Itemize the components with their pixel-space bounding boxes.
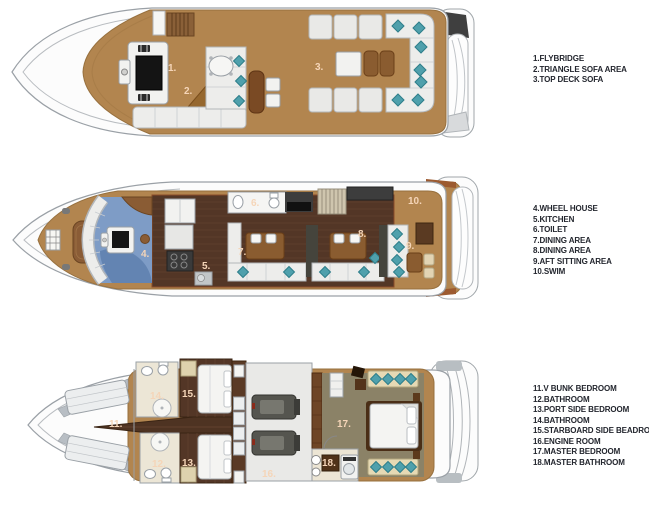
legend-main-deck: 4.WHEEL HOUSE 5.KITCHEN 6.TOILET 7.DININ…	[533, 204, 612, 278]
plan-label-1: 1.	[168, 63, 177, 74]
engine	[252, 395, 300, 419]
legend-item: 17.MASTER BEDROOM	[533, 447, 649, 458]
legend-item: 16.ENGINE ROOM	[533, 437, 649, 448]
legend-flybridge: 1.FLYBRIDGE 2.TRIANGLE SOFA AREA 3.TOP D…	[533, 54, 627, 86]
legend-item: 7.DINING AREA	[533, 236, 612, 247]
closet	[181, 361, 196, 376]
window	[234, 471, 244, 483]
plan-label-18: 18.	[322, 458, 336, 469]
sink-icon	[233, 196, 243, 209]
dresser	[330, 373, 343, 397]
cleat-icon	[62, 208, 70, 214]
plan-label-3: 3.	[315, 62, 324, 73]
yacht-deck-plans: 1. 2. 3.	[0, 0, 649, 505]
master-bed	[366, 401, 422, 451]
legend-lower-deck: 11.V BUNK BEDROOM 12.BATHROOM 13.PORT SI…	[533, 384, 649, 468]
engine	[252, 431, 300, 455]
plan-label-17: 17.	[337, 419, 351, 430]
stove	[167, 251, 193, 271]
legend-item: 6.TOILET	[533, 225, 612, 236]
bathroom-fwd-stbd	[136, 362, 178, 417]
plan-label-2: 2.	[184, 86, 193, 97]
sink-icon	[312, 468, 320, 476]
legend-item: 13.PORT SIDE BEDROOM	[533, 405, 649, 416]
plan-label-14: 14.	[150, 391, 164, 402]
plan-label-9: 9.	[406, 241, 415, 252]
plan-label-4: 4.	[141, 249, 150, 260]
sink-icon	[142, 367, 153, 376]
toilet-icon	[158, 365, 168, 375]
nightstand	[413, 393, 420, 401]
plan-label-13: 13.	[182, 458, 196, 469]
toilet-icon	[269, 198, 279, 208]
legend-item: 18.MASTER BATHROOM	[533, 458, 649, 469]
main-deck-plan: 4. 5. 6. 7. 8. 9. 10.	[0, 165, 520, 320]
legend-item: 5.KITCHEN	[533, 215, 612, 226]
legend-item: 9.AFT SITTING AREA	[533, 257, 612, 268]
plan-label-16: 16.	[262, 469, 276, 480]
stairs-to-flybridge	[153, 11, 194, 36]
helm-stool	[141, 235, 150, 244]
legend-item: 15.STARBOARD SIDE BEADROOM	[533, 426, 649, 437]
plan-label-5: 5.	[202, 261, 211, 272]
legend-item: 12.BATHROOM	[533, 395, 649, 406]
window	[234, 365, 244, 377]
wheelhouse	[85, 197, 152, 283]
legend-item: 8.DINING AREA	[533, 246, 612, 257]
plan-label-11: 11.	[109, 419, 123, 430]
plan-label-8: 8.	[358, 229, 367, 240]
flybridge-deck-plan: 1. 2. 3.	[0, 0, 520, 160]
plan-label-6: 6.	[251, 198, 260, 209]
plan-label-10: 10.	[408, 196, 422, 207]
bathroom-aft-port	[140, 433, 180, 483]
plan-label-15: 15.	[182, 389, 196, 400]
round-table	[209, 56, 233, 76]
lower-deck-plan: 11. 12. 13. 14. 15. 16. 17. 18.	[0, 345, 520, 505]
aft-cabinet	[347, 187, 393, 200]
legend-item: 1.FLYBRIDGE	[533, 54, 627, 65]
closet	[181, 467, 196, 482]
toilet-icon	[312, 456, 321, 465]
legend-item: 4.WHEEL HOUSE	[533, 204, 612, 215]
legend-item: 14.BATHROOM	[533, 416, 649, 427]
engine-room	[246, 363, 312, 481]
anchor-windlass-icon	[46, 230, 60, 250]
plan-label-12: 12.	[152, 459, 166, 470]
companionway	[232, 361, 246, 483]
starboard-side-bedroom	[180, 359, 232, 417]
stairs-down	[318, 189, 346, 214]
cleat-icon	[62, 264, 70, 270]
counter-inset	[287, 202, 311, 211]
legend-item: 3.TOP DECK SOFA	[533, 75, 627, 86]
sink-icon	[145, 470, 156, 479]
plan-label-7: 7.	[238, 247, 247, 258]
cabinet	[355, 379, 366, 390]
nightstand	[413, 451, 420, 459]
legend-item: 2.TRIANGLE SOFA AREA	[533, 65, 627, 76]
legend-item: 11.V BUNK BEDROOM	[533, 384, 649, 395]
legend-item: 10.SWIM	[533, 267, 612, 278]
